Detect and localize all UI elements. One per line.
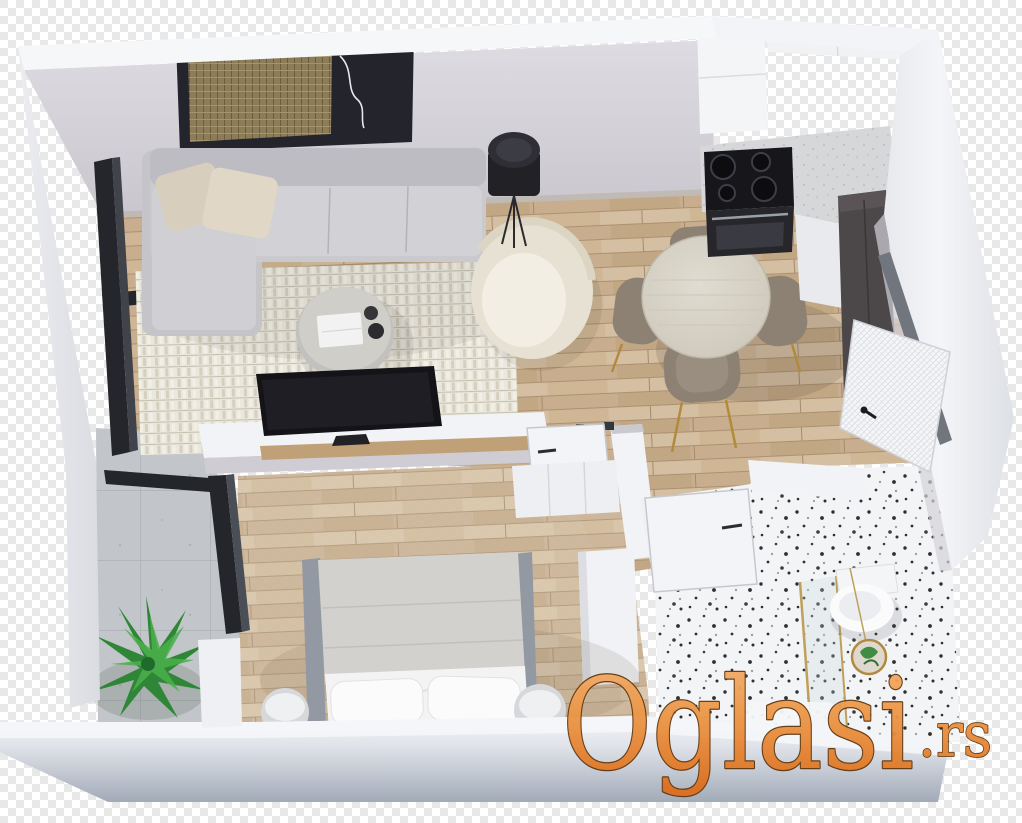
door-hinge [604,422,614,430]
bed-pillow [330,678,424,726]
cup [368,323,384,339]
watermark-suffix: .rs [918,698,992,771]
floor-plan-svg: Oglasi .rs [0,0,1022,823]
toilet [830,564,902,642]
double-bed [302,552,538,730]
watermark-text: Oglasi [562,651,914,798]
bed-pillow [427,676,520,722]
wardrobe [512,460,620,518]
throw-pillow [201,166,280,240]
balcony-divider-wall [198,638,242,728]
floor-plan-image: Oglasi .rs [0,0,1022,823]
balcony-parapet [66,462,100,708]
bathroom-door [645,489,757,592]
oven [706,206,794,257]
cooktop [704,147,794,211]
cup [364,306,378,320]
